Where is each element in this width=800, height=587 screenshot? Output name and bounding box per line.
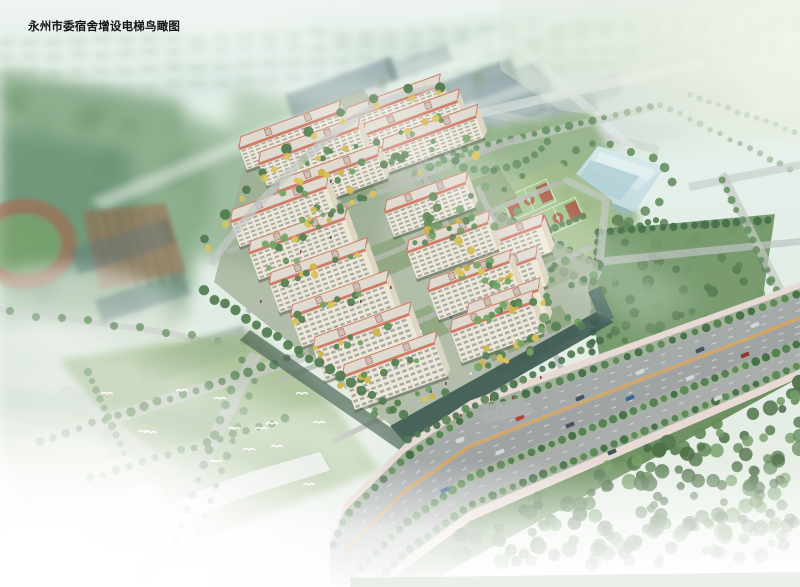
svg-text:永州市委宿舍增设电梯鸟瞰图: 永州市委宿舍增设电梯鸟瞰图 — [27, 19, 180, 33]
